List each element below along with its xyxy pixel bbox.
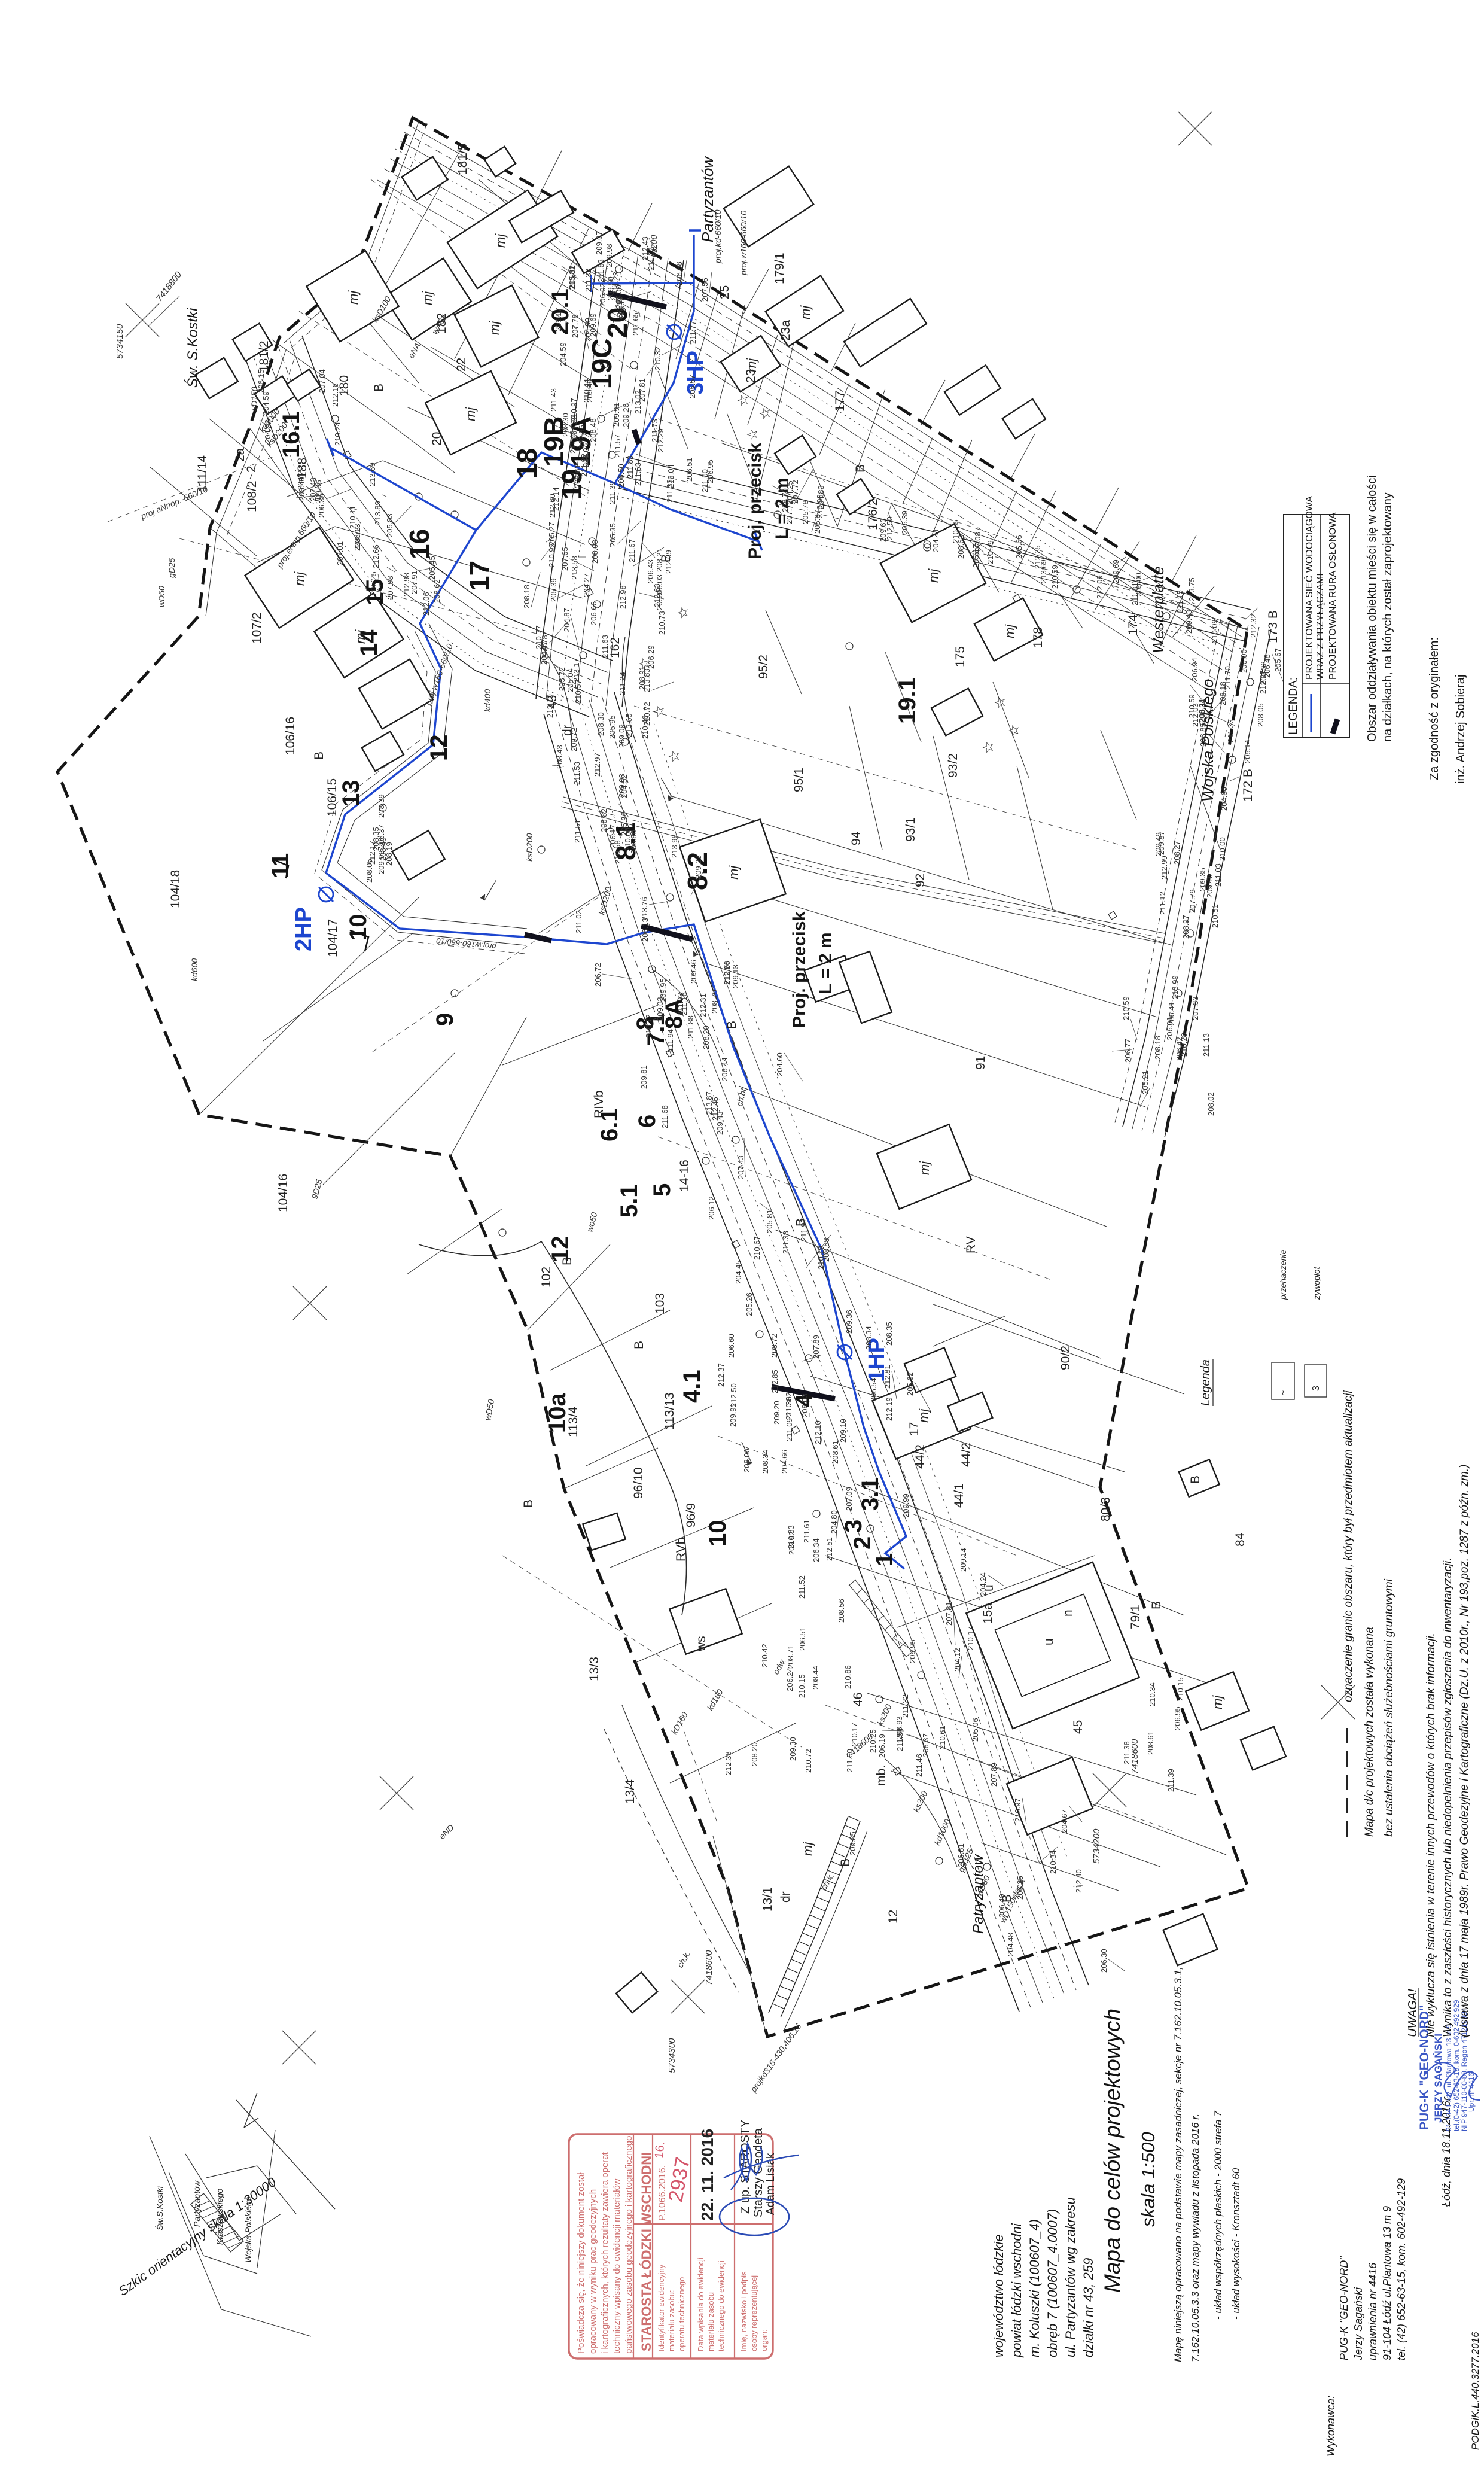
svg-text:☆: ☆ <box>1006 724 1022 737</box>
svg-text:205.66: 205.66 <box>1014 535 1023 559</box>
svg-text:211.31: 211.31 <box>1130 582 1139 605</box>
svg-text:212.85: 212.85 <box>770 1370 779 1393</box>
svg-text:209.99: 209.99 <box>901 1493 910 1517</box>
svg-text:211.24: 211.24 <box>618 672 627 695</box>
svg-text:208.34: 208.34 <box>761 1450 770 1474</box>
svg-text:państwowego zasobu geodezyjneg: państwowego zasobu geodezyjnego i kartog… <box>624 2136 634 2354</box>
svg-text:210.78: 210.78 <box>540 635 549 659</box>
svg-text:176/2: 176/2 <box>866 498 880 530</box>
svg-text:181/5: 181/5 <box>456 143 470 175</box>
svg-text:210.09: 210.09 <box>1210 619 1219 643</box>
svg-text:209.03: 209.03 <box>617 774 626 798</box>
svg-text:213.10: 213.10 <box>546 694 554 718</box>
svg-text:operatu technicznego: operatu technicznego <box>677 2277 686 2351</box>
svg-text:208.03: 208.03 <box>800 1393 809 1417</box>
svg-text:1: 1 <box>871 1553 898 1566</box>
svg-text:206.66: 206.66 <box>589 601 598 625</box>
svg-text:104/17: 104/17 <box>326 919 340 957</box>
svg-text:JERZY SAGAŃSKI: JERZY SAGAŃSKI <box>1433 2034 1444 2123</box>
svg-text:210.65: 210.65 <box>722 960 731 984</box>
svg-text:213.87: 213.87 <box>705 1091 714 1115</box>
svg-text:209.91: 209.91 <box>612 403 621 427</box>
svg-text:210.55: 210.55 <box>951 519 960 543</box>
svg-text:211.43: 211.43 <box>549 388 558 412</box>
svg-text:90/2: 90/2 <box>1059 1346 1072 1370</box>
svg-text:- układ wysokości - Kronszt: - układ wysokości - Kronsztadt 60 <box>1230 2168 1242 2320</box>
svg-text:5: 5 <box>649 1183 675 1197</box>
svg-text:mj: mj <box>726 865 741 880</box>
svg-text:wD150: wD150 <box>249 387 259 413</box>
svg-text:210.82: 210.82 <box>784 1392 793 1416</box>
svg-text:92: 92 <box>913 874 927 887</box>
svg-text:209.91: 209.91 <box>729 1403 738 1427</box>
svg-text:mj: mj <box>420 291 435 305</box>
svg-text:Legenda: Legenda <box>1199 1359 1212 1406</box>
svg-text:13/4: 13/4 <box>623 1779 637 1804</box>
svg-text:7418600: 7418600 <box>1130 1739 1140 1774</box>
svg-text:208.91: 208.91 <box>638 666 647 690</box>
svg-text:mj: mj <box>353 629 368 644</box>
svg-text:208.20: 208.20 <box>702 1025 711 1049</box>
svg-text:209.43: 209.43 <box>715 1111 724 1135</box>
svg-text:17: 17 <box>907 1422 921 1436</box>
svg-text:103: 103 <box>653 1293 667 1314</box>
svg-text:208.97: 208.97 <box>1181 915 1190 939</box>
svg-text:206.19: 206.19 <box>877 1734 886 1758</box>
svg-text:uprawnienia nr 4416: uprawnienia nr 4416 <box>1367 2262 1379 2360</box>
svg-text:211.12: 211.12 <box>1158 891 1167 915</box>
svg-text:☆: ☆ <box>992 696 1008 709</box>
svg-text:207.98: 207.98 <box>386 576 395 600</box>
svg-text:96/10: 96/10 <box>632 1467 645 1499</box>
svg-text:B: B <box>560 1257 574 1265</box>
svg-text:206.30: 206.30 <box>1099 1949 1108 1973</box>
svg-text:19.1: 19.1 <box>894 677 921 724</box>
svg-text:205.26: 205.26 <box>745 1292 754 1316</box>
svg-text:211.38: 211.38 <box>1122 1741 1131 1764</box>
svg-text:mj: mj <box>1210 1695 1225 1709</box>
svg-text:209.87: 209.87 <box>1157 831 1166 855</box>
svg-text:79/1: 79/1 <box>1129 1605 1142 1629</box>
svg-text:211.77: 211.77 <box>688 321 697 344</box>
svg-text:2a: 2a <box>233 448 247 462</box>
svg-text:m. Koluszki (100607_4): m. Koluszki (100607_4) <box>1027 2219 1042 2357</box>
svg-text:204.66: 204.66 <box>780 1450 789 1474</box>
svg-text:207.91: 207.91 <box>410 570 419 594</box>
svg-text:212.86: 212.86 <box>577 425 586 449</box>
svg-text:212.37: 212.37 <box>717 1363 726 1387</box>
svg-text:209.62: 209.62 <box>787 1531 796 1555</box>
svg-text:obręb 7 (100607_4.0007): obręb 7 (100607_4.0007) <box>1045 2209 1060 2357</box>
svg-text:B: B <box>1189 1475 1202 1484</box>
svg-text:175: 175 <box>953 646 967 667</box>
svg-text:94: 94 <box>849 831 863 845</box>
svg-text:205.57: 205.57 <box>688 375 697 398</box>
svg-text:211.83: 211.83 <box>596 259 605 282</box>
svg-text:mj: mj <box>798 305 813 319</box>
svg-text:212.98: 212.98 <box>618 585 627 609</box>
svg-text:B: B <box>312 751 326 760</box>
svg-text:211.38: 211.38 <box>781 1231 790 1254</box>
svg-text:Mapę niniejszą opracowano na p: Mapę niniejszą opracowano na podstawie m… <box>1172 1967 1184 2362</box>
svg-text:210.17: 210.17 <box>966 1626 975 1650</box>
svg-text:204.83: 204.83 <box>816 485 825 509</box>
svg-text:211.13: 211.13 <box>1202 1033 1211 1057</box>
svg-text:211.94: 211.94 <box>666 1029 675 1052</box>
svg-text:województwo łódzkie: województwo łódzkie <box>991 2235 1006 2357</box>
svg-text:211.68: 211.68 <box>660 1105 669 1128</box>
svg-text:204.87: 204.87 <box>562 608 571 632</box>
svg-text:☆: ☆ <box>675 606 691 619</box>
svg-text:208.37: 208.37 <box>921 1733 930 1757</box>
svg-text:207.89: 207.89 <box>989 1763 998 1787</box>
svg-text:PROJEKTOWANA RURA OSŁONOWA: PROJEKTOWANA RURA OSŁONOWA <box>1328 512 1338 680</box>
svg-text:212.66: 212.66 <box>371 544 380 568</box>
svg-text:113/4: 113/4 <box>566 1407 580 1437</box>
svg-text:211.57: 211.57 <box>613 434 622 458</box>
svg-text:205.45: 205.45 <box>428 556 437 580</box>
svg-text:209.17: 209.17 <box>554 308 563 331</box>
svg-text:107/2: 107/2 <box>250 612 264 644</box>
svg-text:209.30: 209.30 <box>788 1737 797 1761</box>
svg-text:B: B <box>839 1858 852 1867</box>
svg-text:Wykonawca:: Wykonawca: <box>1325 2396 1337 2457</box>
svg-text:209.09: 209.09 <box>617 724 626 748</box>
svg-text:Mapa do celów projektowych: Mapa do celów projektowych <box>1100 2009 1125 2293</box>
svg-text:205.39: 205.39 <box>549 578 558 602</box>
svg-text:210.72: 210.72 <box>644 1014 653 1038</box>
svg-text:12: 12 <box>426 735 452 762</box>
svg-text:4.1: 4.1 <box>679 1370 705 1403</box>
svg-text:210.42: 210.42 <box>760 1644 769 1667</box>
svg-text:LEGENDA:: LEGENDA: <box>1287 677 1300 735</box>
svg-text:proj.kd-660/10: proj.kd-660/10 <box>713 209 723 264</box>
svg-text:17: 17 <box>464 561 495 591</box>
svg-text:211.18: 211.18 <box>679 992 688 1015</box>
svg-text:210.72: 210.72 <box>804 1749 813 1773</box>
svg-text:7.162.10.05.3.3 oraz mapy wywi: 7.162.10.05.3.3 oraz mapy wywiadu z list… <box>1190 2114 1201 2362</box>
svg-text:212.32: 212.32 <box>1249 614 1258 638</box>
svg-text:179/1: 179/1 <box>773 252 787 284</box>
svg-text:209.32: 209.32 <box>1259 661 1268 685</box>
svg-text:213.99: 213.99 <box>1171 975 1180 999</box>
svg-text:211.32: 211.32 <box>584 269 593 292</box>
svg-text:210.15: 210.15 <box>1176 1677 1185 1701</box>
svg-text:210.92: 210.92 <box>547 543 556 567</box>
svg-text:11: 11 <box>267 853 294 878</box>
svg-text:211.97: 211.97 <box>799 1218 808 1241</box>
svg-text:208.34: 208.34 <box>864 1326 873 1350</box>
svg-text:210.24: 210.24 <box>333 422 342 446</box>
svg-text:22. 11. 2016: 22. 11. 2016 <box>698 2129 717 2221</box>
svg-text:5734200: 5734200 <box>1092 1828 1102 1864</box>
svg-text:207.81: 207.81 <box>944 1602 953 1626</box>
svg-text:25: 25 <box>718 285 732 299</box>
svg-text:mb.: mb. <box>874 1765 888 1786</box>
svg-text:209.26: 209.26 <box>621 403 630 427</box>
svg-text:208.61: 208.61 <box>1146 1731 1155 1755</box>
svg-text:209.85: 209.85 <box>848 1831 857 1855</box>
svg-text:204.66: 204.66 <box>1220 787 1229 811</box>
svg-text:211.51: 211.51 <box>573 820 582 843</box>
svg-text:205.83: 205.83 <box>385 513 394 537</box>
svg-text:208.61: 208.61 <box>573 464 582 488</box>
svg-text:46: 46 <box>851 1693 865 1706</box>
svg-text:5.1: 5.1 <box>616 1184 642 1218</box>
svg-text:L = 2 m: L = 2 m <box>816 932 836 994</box>
svg-text:211.67: 211.67 <box>627 539 636 562</box>
svg-text:209.07: 209.07 <box>595 231 604 255</box>
svg-text:przehaczenie: przehaczenie <box>1278 1250 1288 1300</box>
svg-text:6: 6 <box>634 1115 660 1128</box>
svg-text:209.81: 209.81 <box>639 1065 648 1089</box>
svg-text:208.18: 208.18 <box>1218 681 1227 705</box>
svg-text:44/1: 44/1 <box>952 1483 966 1508</box>
svg-text:kd600: kd600 <box>190 958 199 981</box>
svg-text:Westerplatte: Westerplatte <box>1149 567 1167 653</box>
svg-text:104/16: 104/16 <box>276 1174 290 1212</box>
svg-text:210.51: 210.51 <box>1211 904 1220 928</box>
svg-text:210.61: 210.61 <box>938 1726 947 1749</box>
svg-text:91: 91 <box>974 1056 988 1070</box>
svg-text:osoby reprezentującej: osoby reprezentującej <box>749 2275 758 2351</box>
svg-text:☆: ☆ <box>980 741 997 754</box>
svg-text:208.02: 208.02 <box>1206 1092 1215 1116</box>
svg-text:Upr. nr 4416: Upr. nr 4416 <box>1467 2073 1476 2112</box>
svg-text:211.63: 211.63 <box>633 462 642 486</box>
svg-text:213.02: 213.02 <box>633 390 642 414</box>
svg-text:(Ustawa z dnia 17 maja 1989r.: (Ustawa z dnia 17 maja 1989r. Prawo Geod… <box>1458 1465 1471 2038</box>
svg-text:204.12: 204.12 <box>953 1648 962 1672</box>
svg-text:207.79: 207.79 <box>1188 889 1197 913</box>
svg-text:212.51: 212.51 <box>825 1537 834 1561</box>
svg-text:206.13: 206.13 <box>641 918 650 942</box>
svg-text:Wynika to z zaszłości historyc: Wynika to z zaszłości historycznych lub … <box>1442 1557 1454 2037</box>
svg-text:211.73: 211.73 <box>650 419 659 442</box>
svg-text:208.35: 208.35 <box>885 1322 894 1346</box>
svg-text:Imię, nazwisko i podpis: Imię, nazwisko i podpis <box>739 2271 748 2351</box>
svg-text:206.34: 206.34 <box>812 1538 821 1562</box>
svg-text:materiału zasobu: materiału zasobu <box>706 2292 715 2351</box>
svg-text:206.41: 206.41 <box>1167 1002 1176 1025</box>
svg-text:206.00: 206.00 <box>1239 649 1248 673</box>
svg-text:174: 174 <box>1126 614 1140 635</box>
svg-text:Proj. przecisk: Proj. przecisk <box>745 443 765 559</box>
svg-text:B: B <box>1150 1601 1163 1609</box>
svg-text:☆: ☆ <box>666 750 682 763</box>
svg-text:206.95: 206.95 <box>1173 1706 1182 1730</box>
svg-text:ws: ws <box>694 1636 708 1652</box>
svg-text:206.24: 206.24 <box>785 1667 794 1691</box>
svg-text:inż. Andrzej Sobieraj: inż. Andrzej Sobieraj <box>1454 675 1467 784</box>
svg-text:205.06: 205.06 <box>971 1718 980 1742</box>
svg-text:n: n <box>1061 1609 1075 1617</box>
svg-text:opracowany w wyniku prac geode: opracowany w wyniku prac geodezyjnych <box>588 2189 598 2354</box>
svg-text:205.81: 205.81 <box>765 1209 774 1233</box>
svg-text:Partyzantów: Partyzantów <box>192 2180 202 2227</box>
svg-text:212.31: 212.31 <box>699 993 708 1017</box>
svg-text:tel. (42) 652-63-15, kom. 602: tel. (42) 652-63-15, kom. 602-492-129 <box>1395 2178 1407 2360</box>
svg-text:204.59: 204.59 <box>261 391 270 415</box>
svg-text:206.44: 206.44 <box>720 1057 729 1081</box>
svg-text:205.72: 205.72 <box>557 667 566 691</box>
svg-text:212.63: 212.63 <box>653 583 662 607</box>
svg-text:22: 22 <box>455 358 468 372</box>
svg-text:Data wpisania do ewidencji: Data wpisania do ewidencji <box>696 2257 705 2351</box>
svg-text:Mapa d/c projektowych została: Mapa d/c projektowych została wykonana <box>1363 1627 1376 1837</box>
svg-text:B: B <box>372 384 386 392</box>
svg-text:208.05: 208.05 <box>1256 703 1265 727</box>
svg-text:mj: mj <box>916 1408 931 1423</box>
svg-text:RV: RV <box>964 1236 978 1253</box>
svg-text:~: ~ <box>1278 1390 1288 1395</box>
svg-text:213.69: 213.69 <box>368 462 377 486</box>
svg-text:172 B: 172 B <box>1241 769 1255 802</box>
svg-text:16.: 16. <box>653 2141 667 2159</box>
svg-text:212.10: 212.10 <box>813 1420 822 1444</box>
svg-text:208.56: 208.56 <box>837 1599 846 1623</box>
svg-text:208.08: 208.08 <box>590 540 599 564</box>
svg-text:żywopłot: żywopłot <box>1312 1266 1321 1300</box>
svg-text:13/1: 13/1 <box>761 1887 775 1912</box>
svg-text:212.99: 212.99 <box>1160 856 1169 880</box>
svg-text:PUG-K "GEO-NORD": PUG-K "GEO-NORD" <box>1338 2256 1350 2360</box>
svg-text:gD25: gD25 <box>167 558 176 578</box>
svg-text:206.51: 206.51 <box>685 458 694 482</box>
svg-text:209.43: 209.43 <box>1184 610 1193 634</box>
svg-text:209.10: 209.10 <box>839 1419 848 1443</box>
svg-text:209.69: 209.69 <box>589 313 598 337</box>
svg-text:206.94: 206.94 <box>1190 658 1199 681</box>
svg-text:Św. S.Kostki: Św. S.Kostki <box>184 308 201 388</box>
svg-text:206.60: 206.60 <box>727 1334 736 1358</box>
svg-text:B: B <box>632 1341 646 1349</box>
svg-text:212.09: 212.09 <box>664 550 673 574</box>
svg-text:211.53: 211.53 <box>572 762 581 785</box>
svg-text:93/1: 93/1 <box>904 817 918 842</box>
svg-text:5734150: 5734150 <box>115 324 125 359</box>
svg-text:177: 177 <box>833 391 847 412</box>
svg-text:209.46: 209.46 <box>585 379 594 403</box>
svg-text:212.40: 212.40 <box>1074 1869 1083 1893</box>
svg-text:208.20: 208.20 <box>750 1742 759 1766</box>
svg-text:3.1: 3.1 <box>857 1477 883 1511</box>
svg-text:Proj. przecisk: Proj. przecisk <box>790 911 809 1028</box>
svg-text:208.18: 208.18 <box>1153 1036 1162 1060</box>
svg-text:204.60: 204.60 <box>775 1052 784 1076</box>
svg-text:działki nr 43, 259: działki nr 43, 259 <box>1081 2258 1096 2357</box>
svg-text:210.46: 210.46 <box>641 715 650 739</box>
svg-text:☆: ☆ <box>651 705 668 718</box>
svg-text:211.63: 211.63 <box>601 635 610 658</box>
svg-text:organ:: organ: <box>760 2329 769 2351</box>
svg-text:212.97: 212.97 <box>593 753 602 777</box>
svg-text:208.58: 208.58 <box>822 1238 831 1262</box>
svg-text:211.02: 211.02 <box>574 910 583 933</box>
svg-text:95/2: 95/2 <box>757 655 770 679</box>
svg-text:96/9: 96/9 <box>684 1503 698 1527</box>
svg-text:207.56: 207.56 <box>700 278 709 302</box>
svg-text:mj: mj <box>493 233 508 248</box>
svg-text:207.43: 207.43 <box>309 477 318 501</box>
svg-text:7418600: 7418600 <box>704 1950 714 1985</box>
svg-text:Obszar oddziaływania obiektu m: Obszar oddziaływania obiektu mieści się … <box>1366 475 1379 742</box>
svg-text:208.05: 208.05 <box>365 859 374 883</box>
svg-text:206.39: 206.39 <box>900 510 909 534</box>
svg-text:212.19: 212.19 <box>885 1397 894 1421</box>
svg-text:205.67: 205.67 <box>813 510 822 534</box>
svg-text:204.67: 204.67 <box>1060 1809 1069 1833</box>
svg-text:207.65: 207.65 <box>560 547 569 571</box>
svg-text:STAROSTA ŁÓDZKI WSCHODNI: STAROSTA ŁÓDZKI WSCHODNI <box>639 2152 654 2351</box>
svg-text:213.58: 213.58 <box>570 556 579 580</box>
svg-text:208.79: 208.79 <box>710 990 719 1014</box>
svg-text:210.79: 210.79 <box>986 540 995 564</box>
svg-text:95/1: 95/1 <box>792 768 806 792</box>
svg-text:206.77: 206.77 <box>1123 1039 1132 1063</box>
svg-text:206.51: 206.51 <box>798 1627 807 1651</box>
svg-text:208.82: 208.82 <box>599 808 608 832</box>
svg-text:ks200: ks200 <box>649 235 659 257</box>
svg-text:205.27: 205.27 <box>547 522 556 546</box>
svg-text:213.76: 213.76 <box>640 897 649 921</box>
svg-text:212.25: 212.25 <box>1033 545 1042 569</box>
svg-text:- układ współrzędnych płaskic: - układ współrzędnych płaskich - 2000 st… <box>1212 2111 1224 2320</box>
svg-text:UWAGA!: UWAGA! <box>1406 1989 1419 2037</box>
svg-text:207.33: 207.33 <box>1191 996 1200 1020</box>
svg-text:210.59: 210.59 <box>1187 694 1196 718</box>
svg-text:208.18: 208.18 <box>522 585 531 608</box>
svg-text:na działkach, na których zosta: na działkach, na których został zaprojek… <box>1381 492 1394 742</box>
svg-text:3: 3 <box>1311 1386 1321 1391</box>
svg-text:2: 2 <box>849 1536 876 1550</box>
svg-text:210.15: 210.15 <box>797 1674 806 1698</box>
svg-text:206.12: 206.12 <box>707 1196 716 1220</box>
svg-text:5734300: 5734300 <box>667 2038 677 2073</box>
svg-text:162: 162 <box>608 637 622 658</box>
svg-text:210.67: 210.67 <box>752 1236 761 1260</box>
svg-text:209.13: 209.13 <box>731 964 740 988</box>
svg-text:208.72: 208.72 <box>770 1334 779 1358</box>
svg-text:211.32: 211.32 <box>901 1694 910 1718</box>
svg-text:212.09: 212.09 <box>1095 575 1104 599</box>
svg-text:211.15: 211.15 <box>1175 590 1184 613</box>
svg-text:Nie wyklucza się istnienia w t: Nie wyklucza się istnienia w terenie inn… <box>1425 1633 1437 2037</box>
svg-text:23a: 23a <box>779 320 793 341</box>
svg-text:techniczny wpisany do ewidencj: techniczny wpisany do ewidencji materiał… <box>612 2178 622 2354</box>
svg-text:205.35: 205.35 <box>608 523 617 547</box>
svg-text:208.30: 208.30 <box>596 712 605 736</box>
svg-text:211.84: 211.84 <box>895 1728 904 1751</box>
svg-text:210.10: 210.10 <box>615 296 624 320</box>
svg-text:210.34: 210.34 <box>1148 1682 1157 1706</box>
svg-text:108/2: 108/2 <box>245 480 259 512</box>
svg-text:Za zgodność z oryginałem:: Za zgodność z oryginałem: <box>1428 637 1441 780</box>
svg-text:208.27: 208.27 <box>1172 841 1181 865</box>
svg-text:technicznego do ewidencji: technicznego do ewidencji <box>717 2260 726 2351</box>
svg-text:205.95: 205.95 <box>608 715 617 739</box>
svg-text:212.06: 212.06 <box>422 592 431 616</box>
svg-text:☆: ☆ <box>735 394 751 407</box>
svg-text:209.20: 209.20 <box>772 1401 781 1425</box>
svg-text:206.54: 206.54 <box>869 1378 878 1402</box>
svg-text:209.95: 209.95 <box>908 1639 917 1663</box>
svg-text:206.37: 206.37 <box>377 824 386 848</box>
svg-text:16: 16 <box>404 529 435 559</box>
svg-text:211.09: 211.09 <box>785 1418 794 1441</box>
svg-text:211.39: 211.39 <box>1166 1769 1175 1792</box>
svg-text:210.97: 210.97 <box>569 398 578 422</box>
